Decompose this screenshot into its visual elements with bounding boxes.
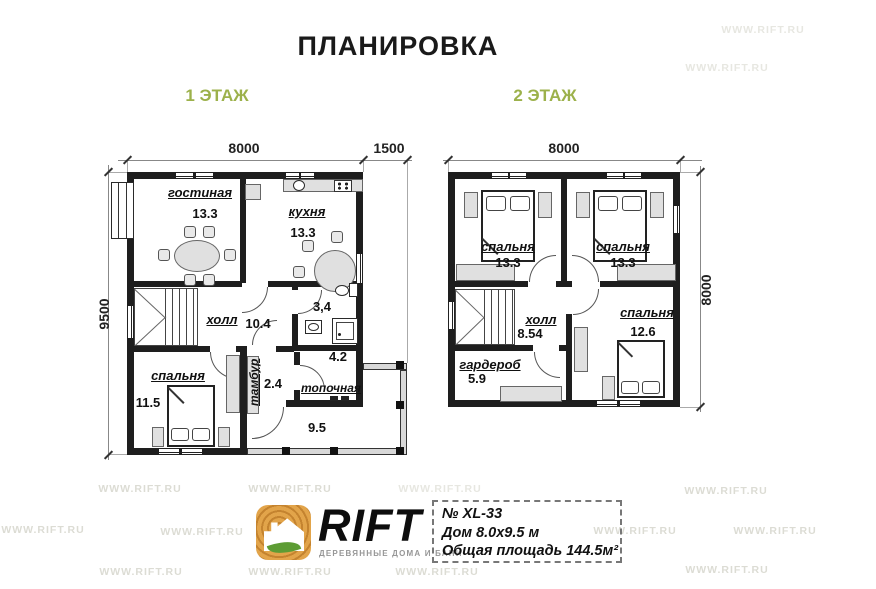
nightstand [152,427,164,447]
toilet-bowl [335,285,349,296]
window [607,172,623,179]
window [597,400,617,407]
room-label-bedroom3: спальня [607,305,687,320]
wall-segment [448,172,680,179]
boiler-vent [341,396,349,401]
wall-segment [455,345,533,351]
window [182,448,202,455]
pillow [598,196,618,211]
porch-railing [247,448,400,455]
boiler-vent [330,396,338,401]
room-label-bedroom1: спальня [468,239,548,254]
wall-segment [294,352,300,365]
wall-segment [556,281,572,287]
watermark: WWW.RIFT.RU [1,524,84,536]
shower-tray [336,322,354,340]
porch-railing [400,370,407,455]
wall-segment [455,281,528,287]
nightstand [576,192,590,218]
wall-segment [600,281,673,287]
extension-line [407,161,408,363]
window [620,400,640,407]
window [510,172,526,179]
room-area-bedroom2: 13.3 [593,255,653,270]
shower-drain [338,333,341,336]
window [127,306,134,338]
door-arc [534,352,560,378]
room-area-bathroom: 3,4 [305,299,339,314]
wall-segment [276,346,294,352]
room-label-wardrobe: гардероб [450,357,530,372]
stair-diagonal [456,317,485,345]
stair-diagonal [455,290,484,318]
nightstand [218,427,230,447]
pillow [486,196,506,211]
watermark: WWW.RIFT.RU [684,485,767,497]
wall-segment [134,346,210,352]
watermark: WWW.RIFT.RU [685,564,768,576]
porch-post [396,361,404,369]
extension-line [448,161,449,172]
pillow [621,381,639,394]
nightstand [538,192,552,218]
chair [293,266,305,278]
dim-height-floor2: 8000 [698,270,714,310]
window [301,172,314,179]
window [159,448,179,455]
room-area-wardrobe: 5.9 [457,371,497,386]
chair [203,274,215,286]
stove [334,180,352,192]
watermark: WWW.RIFT.RU [733,525,816,537]
window [673,206,680,233]
chair [224,249,236,261]
room-area-bedroom3: 12.6 [618,324,668,339]
floor2-label: 2 ЭТАЖ [495,86,595,106]
wall-segment [559,345,566,351]
stair-diagonal [135,316,166,345]
window [196,172,213,179]
watermark: WWW.RIFT.RU [395,566,478,578]
watermark: WWW.RIFT.RU [398,483,481,495]
room-label-kitchen: кухня [277,204,337,219]
watermark: WWW.RIFT.RU [248,566,331,578]
room-area-boiler: 4.2 [320,349,356,364]
room-label-hall2: холл [511,312,571,327]
nightstand [464,192,478,218]
watermark: WWW.RIFT.RU [160,526,243,538]
wall-segment [566,314,572,407]
closet [226,355,240,413]
project-total-area: Общая площадь 144.5м² [442,542,612,561]
window [448,302,455,329]
porch-post [396,401,404,409]
toilet-tank [349,283,358,297]
project-info-box: № XL-33 Дом 8.0x9.5 м Общая площадь 144.… [432,500,622,563]
window-mullion [118,183,119,238]
nightstand [650,192,664,218]
room-label-bedroom: спальня [143,368,213,383]
window [625,172,641,179]
dimension-line [443,160,702,161]
room-area-hall: 10.4 [238,316,278,331]
door-arc [573,289,599,315]
project-size: Дом 8.0x9.5 м [442,524,612,543]
wall-segment [127,172,363,179]
room-label-bedroom2: спальня [583,239,663,254]
sink-basin [308,323,319,331]
wall-segment [448,400,680,407]
extension-line [127,161,128,172]
pillow [192,428,210,441]
watermark: WWW.RIFT.RU [98,483,181,495]
sink [293,180,305,191]
room-area-bedroom1: 13.3 [478,255,538,270]
window-mullion [126,183,127,238]
extension-line [680,161,681,172]
bay-window-frame [111,182,134,239]
chair [302,240,314,252]
room-area-living: 13.3 [175,206,235,221]
dim-height-floor1: 9500 [96,294,112,334]
watermark: WWW.RIFT.RU [721,24,804,36]
pillow [642,381,660,394]
project-model: № XL-33 [442,505,612,524]
door-arc [242,287,268,313]
dim-porch-floor1: 1500 [349,140,429,156]
window [356,254,363,283]
nightstand [602,376,615,400]
room-area-kitchen: 13.3 [273,225,333,240]
watermark: WWW.RIFT.RU [99,566,182,578]
chair [158,249,170,261]
chair [203,226,215,238]
room-label-boiler: топочная [296,381,366,395]
dining-table [174,240,220,272]
porch-post [282,447,290,455]
wall-segment [240,348,247,455]
window [286,172,299,179]
room-label-living: гостиная [160,185,240,200]
dim-width-floor2: 8000 [524,140,604,156]
floorplan-page: WWW.RIFT.RU WWW.RIFT.RU WWW.RIFT.RU WWW.… [0,0,876,589]
porch-post [396,447,404,455]
wall-segment [292,281,298,290]
pillow [171,428,189,441]
room-area-vestibule: 2.4 [257,376,289,391]
window [492,172,508,179]
extension-line [108,454,127,455]
dim-width-floor1: 8000 [204,140,284,156]
pillow [622,196,642,211]
room-area-bedroom: 11.5 [128,395,168,410]
window [176,172,193,179]
stair-diagonal [134,289,165,318]
porch-post [330,447,338,455]
chair [184,274,196,286]
chair [184,226,196,238]
dimension-line [118,160,412,161]
room-area-terrace: 9.5 [297,420,337,435]
brand-name: RIFT [318,500,422,552]
closet [574,327,588,372]
extension-line [108,172,127,173]
watermark: WWW.RIFT.RU [685,62,768,74]
wardrobe-cabinet [500,386,562,402]
kitchen-cabinet [245,184,261,200]
staircase [134,288,198,346]
pillow [510,196,530,211]
page-title: ПЛАНИРОВКА [288,31,508,62]
wall-segment [561,179,567,281]
floor1-label: 1 ЭТАЖ [167,86,267,106]
watermark: WWW.RIFT.RU [248,483,331,495]
room-area-hall2: 8.54 [505,326,555,341]
extension-line [363,161,364,172]
